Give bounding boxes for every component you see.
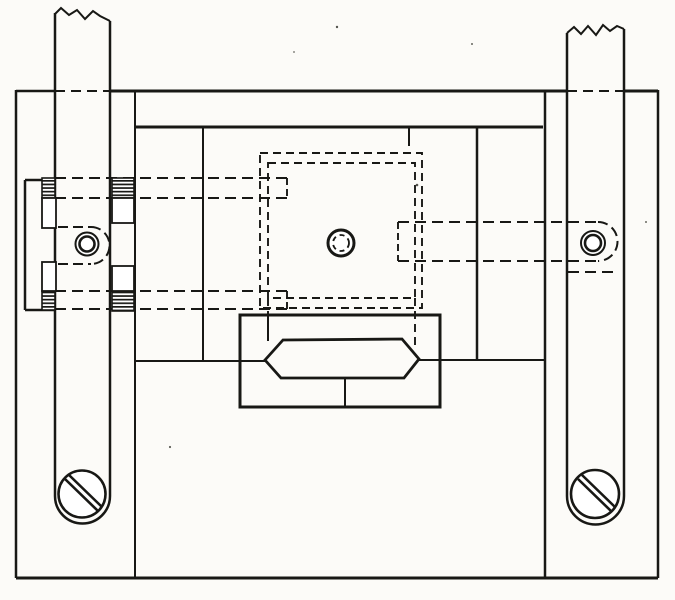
scan-speck-2	[471, 43, 473, 45]
shank-box-lower-left	[42, 262, 56, 291]
scan-speck-1	[336, 26, 338, 28]
shank-box-upper-right	[112, 198, 134, 223]
wedge-housing-outline	[240, 315, 440, 407]
thread-block-lower-right	[112, 291, 134, 311]
center-pivot-outer-ring	[328, 230, 354, 256]
wedge-block-outline	[265, 339, 419, 378]
scan-speck-3	[416, 184, 419, 187]
scan-speck-6	[169, 446, 171, 448]
patent-drawing-page	[0, 0, 675, 600]
mechanism-plan-view-drawing	[0, 0, 675, 600]
thread-block-upper-left	[42, 178, 55, 198]
shank-box-upper-left	[42, 198, 56, 228]
thread-block-lower-left	[42, 291, 55, 310]
scan-speck-4	[645, 221, 647, 223]
scan-speck-5	[293, 51, 295, 53]
shank-box-lower-right	[112, 266, 134, 291]
right-slide-bar-break-line	[567, 25, 624, 35]
thread-block-upper-right	[112, 178, 134, 198]
left-slide-bar-break-line	[55, 8, 110, 21]
